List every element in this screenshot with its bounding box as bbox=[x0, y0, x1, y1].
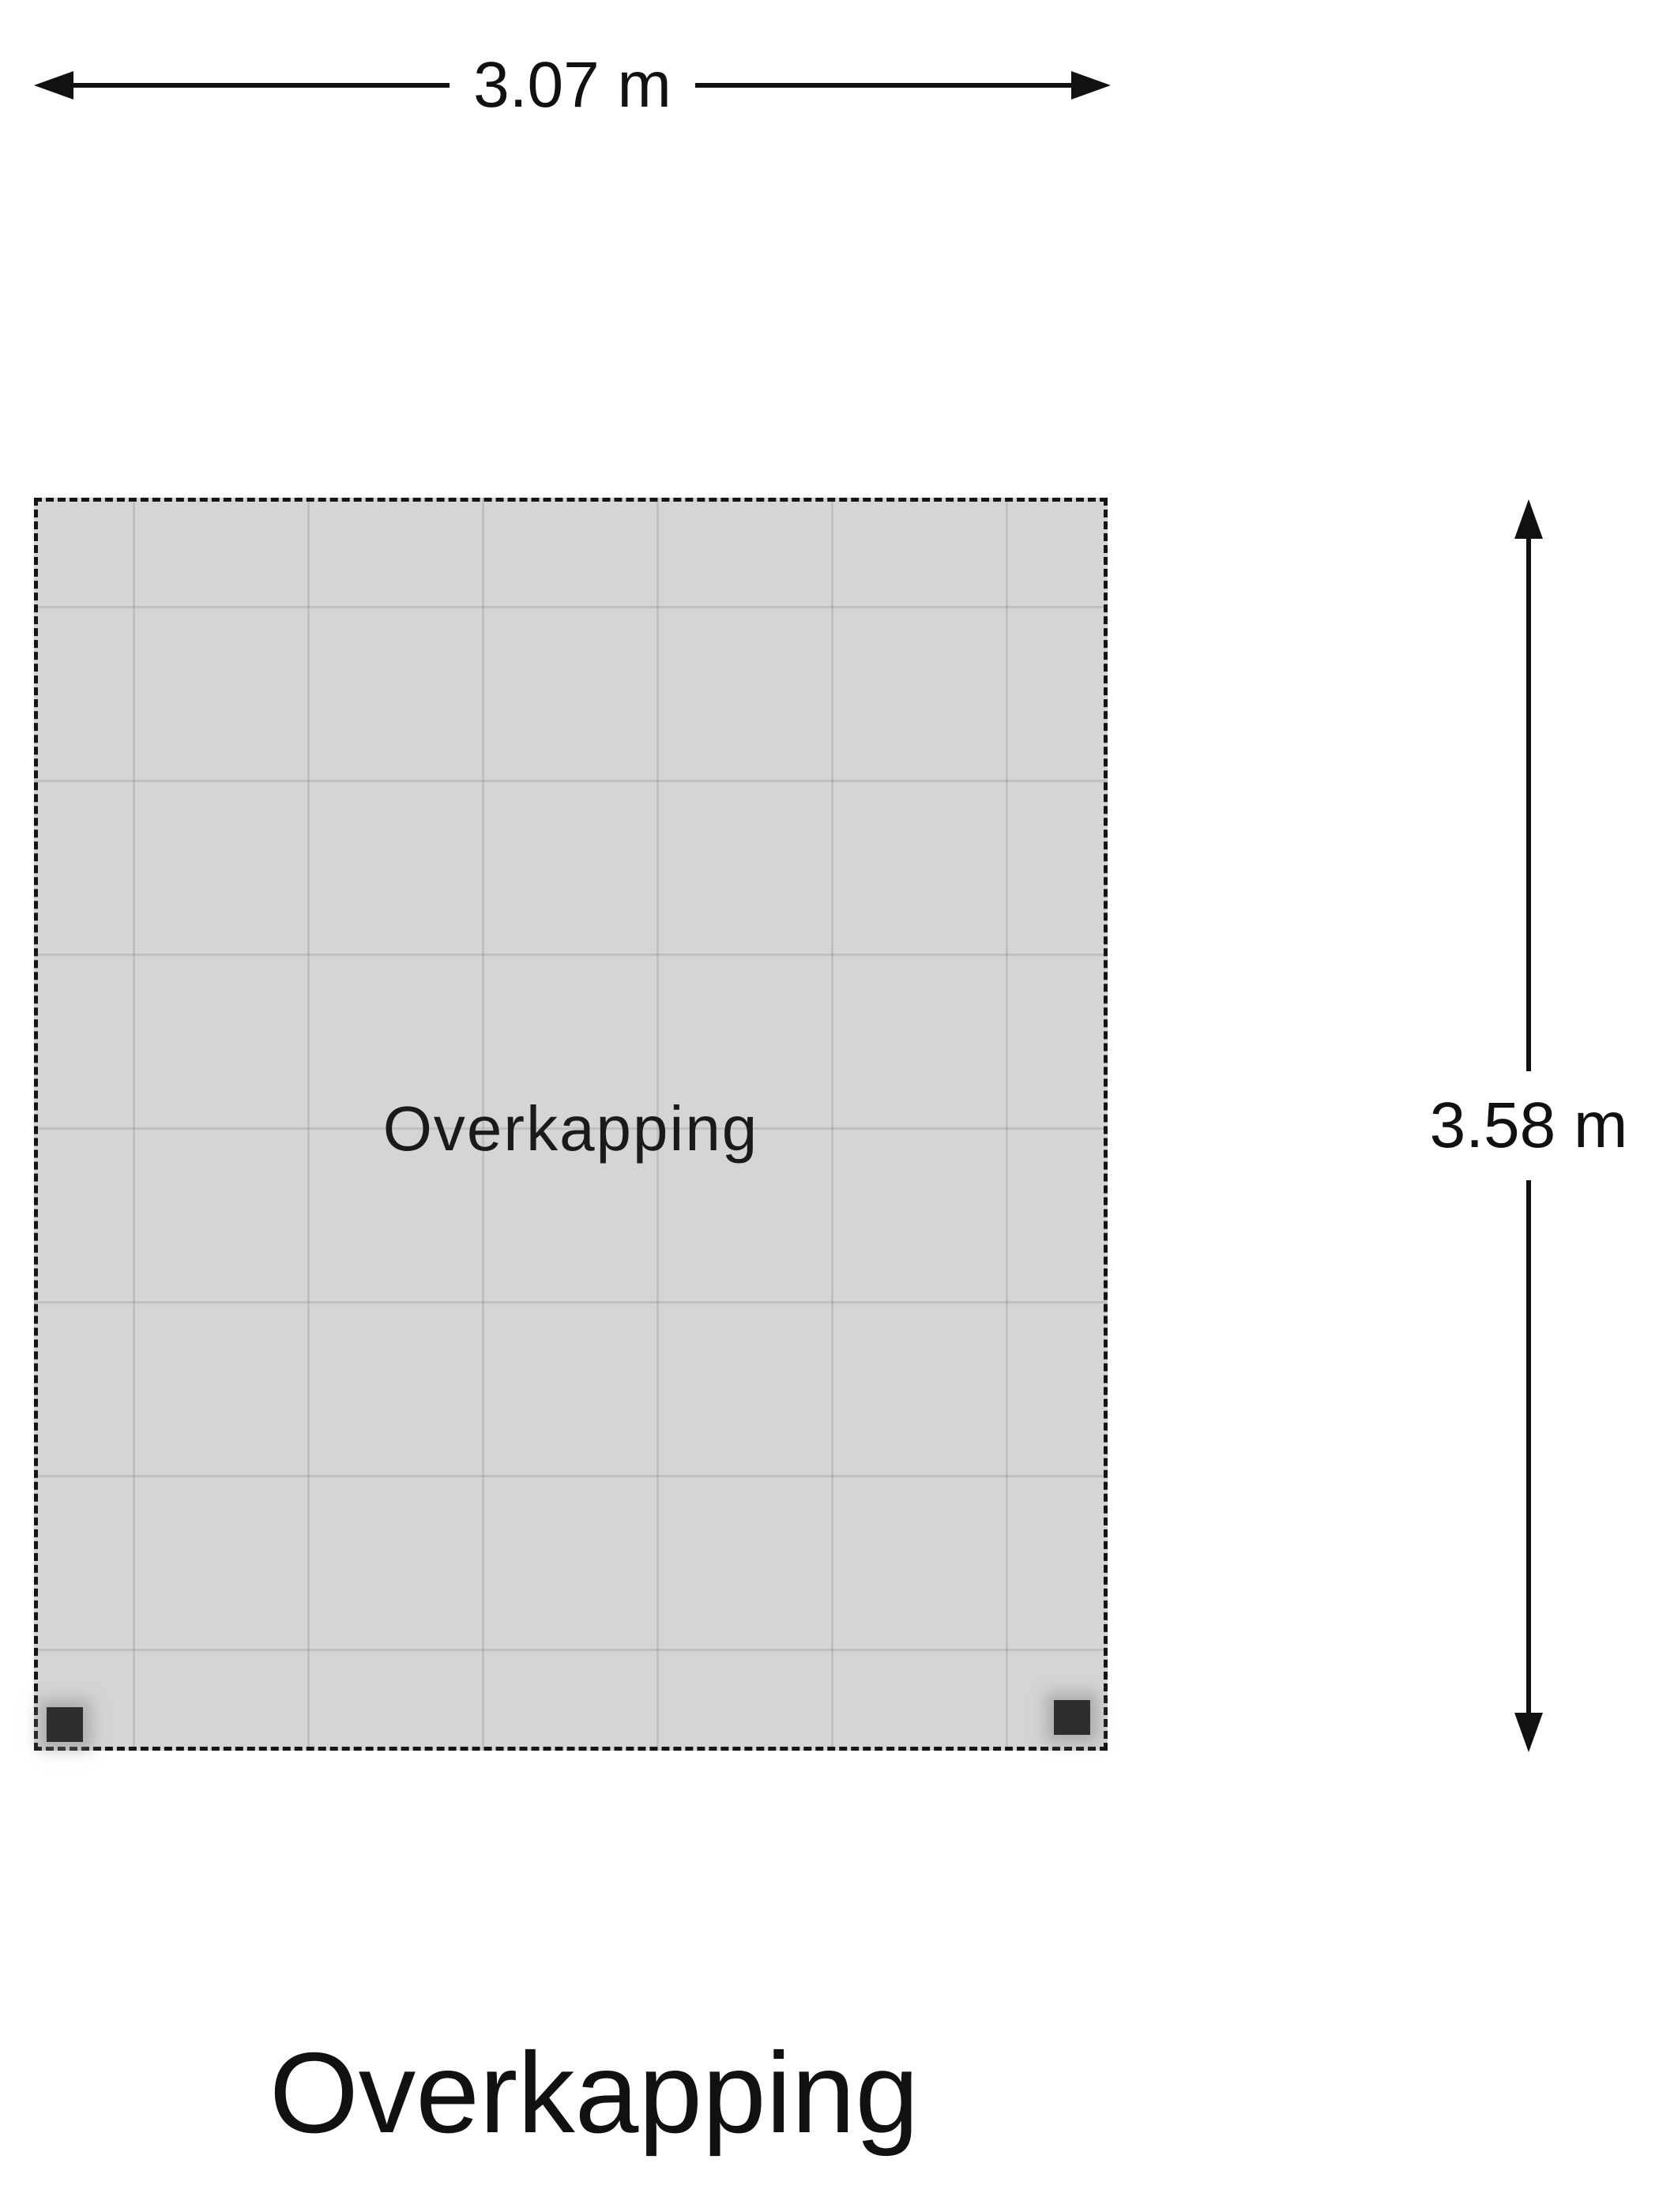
height-dimension-line-bottom bbox=[1526, 1180, 1531, 1713]
width-dimension-label: 3.07 m bbox=[450, 53, 695, 118]
width-dimension: 3.07 m bbox=[34, 46, 1111, 125]
post-bottom-left bbox=[47, 1707, 83, 1742]
height-dimension-line-top bbox=[1526, 539, 1531, 1071]
width-dimension-line-right bbox=[695, 83, 1071, 88]
height-dimension-label: 3.58 m bbox=[1430, 1071, 1628, 1180]
floorplan-canvas: 3.07 m Overkapping 3.58 m Overkapping bbox=[0, 0, 1659, 2212]
post-bottom-right bbox=[1054, 1700, 1090, 1735]
arrow-down-icon bbox=[1514, 1713, 1543, 1752]
plan-title: Overkapping bbox=[269, 2036, 919, 2150]
floor-area: Overkapping bbox=[34, 498, 1108, 1751]
room-label: Overkapping bbox=[383, 1097, 759, 1161]
arrow-right-icon bbox=[1071, 71, 1111, 100]
width-dimension-line-left bbox=[73, 83, 450, 88]
height-dimension: 3.58 m bbox=[1507, 499, 1551, 1752]
arrow-left-icon bbox=[34, 71, 73, 100]
arrow-up-icon bbox=[1514, 499, 1543, 539]
